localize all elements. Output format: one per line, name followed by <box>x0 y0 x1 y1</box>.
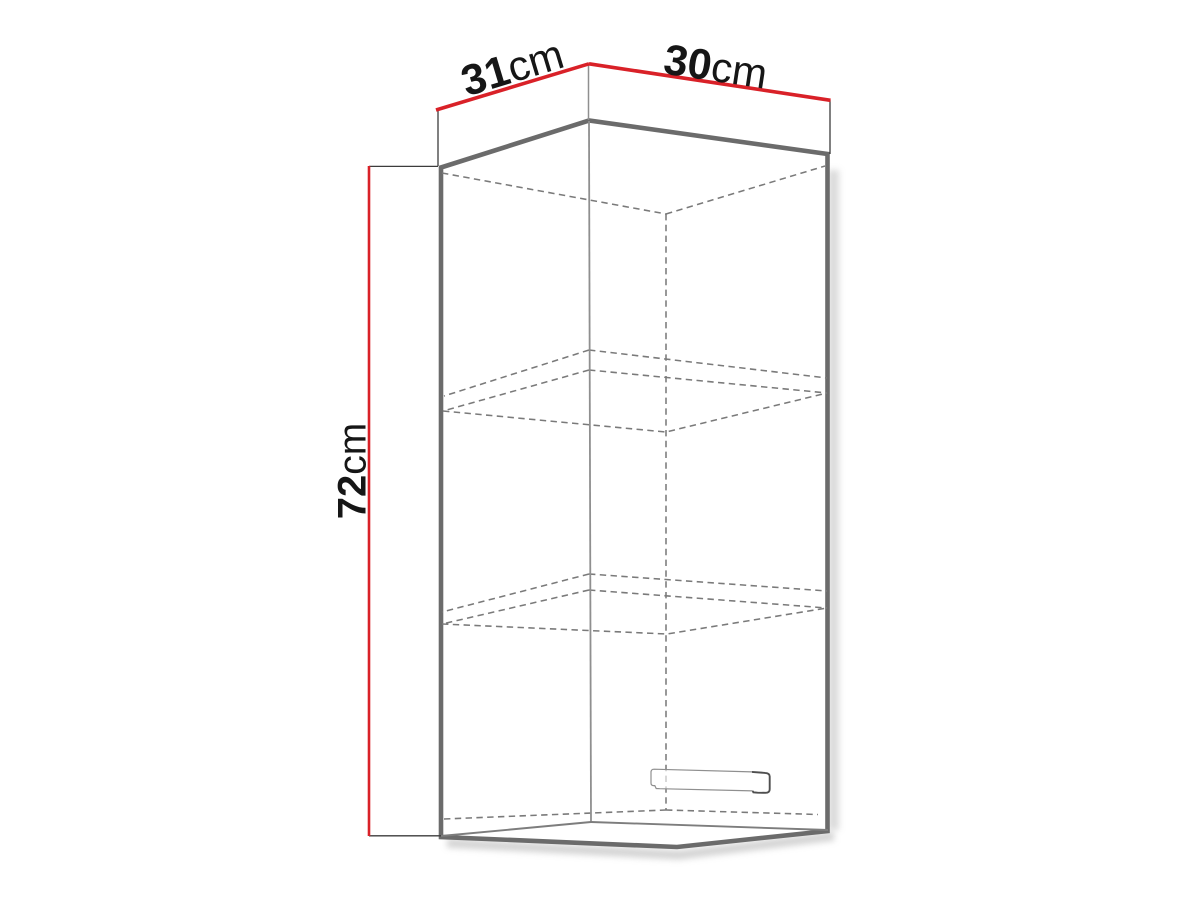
svg-text:72cm: 72cm <box>331 423 375 520</box>
